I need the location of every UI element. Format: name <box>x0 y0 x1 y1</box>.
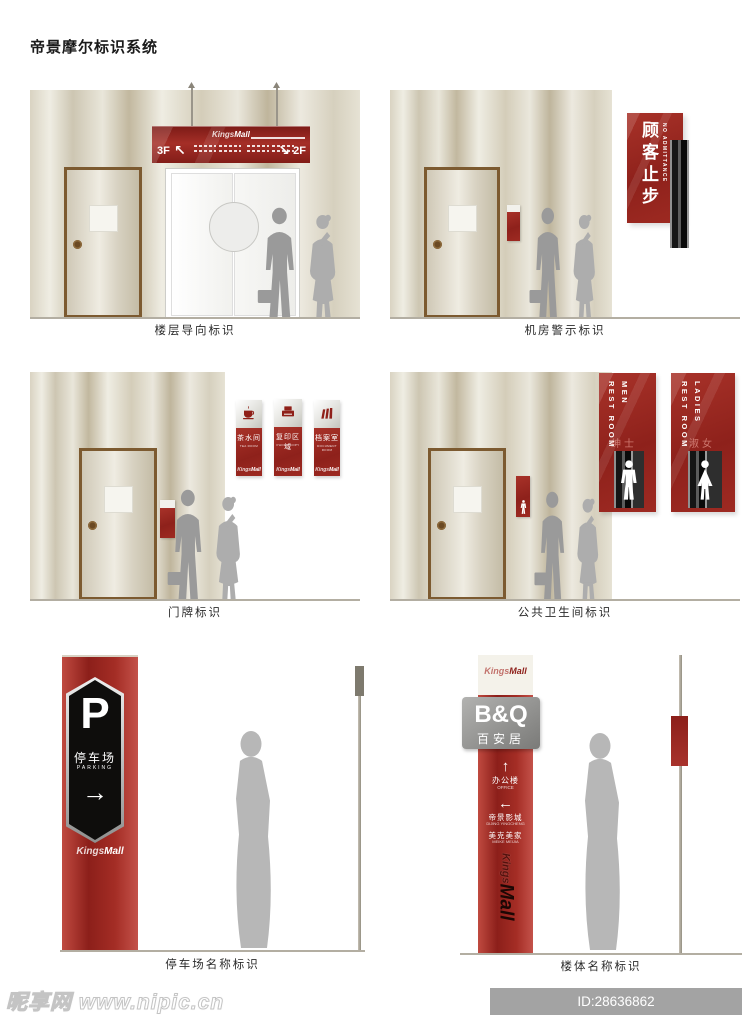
parking-symbol: P <box>66 689 124 739</box>
floor-line <box>30 317 360 319</box>
people-silhouettes <box>528 206 604 318</box>
door <box>428 448 506 600</box>
cup-icon <box>241 405 257 421</box>
plate-body: 档案室 DOCUMENT ROOM KingsMall <box>314 428 340 476</box>
plate-label-cn: 复印区域 <box>274 432 302 452</box>
people-silhouettes <box>256 206 346 318</box>
door-knob <box>88 521 97 530</box>
arrow-up-left-icon: ↖ <box>174 143 186 157</box>
people-silhouettes <box>166 488 250 600</box>
ceiling-anchor <box>273 82 280 88</box>
direction-en: OFFICE <box>478 785 533 790</box>
brand-kings: Kings <box>315 467 329 473</box>
plate-label-en: TEA ROOM <box>236 444 262 448</box>
brand-mall: Mall <box>496 884 517 921</box>
elevator-circle-sign <box>209 202 259 252</box>
door-side-restroom-sign <box>516 476 530 517</box>
plate-label-en: PHOTO COPY <box>274 443 302 447</box>
door-plate-tea-room: 茶水间 TEA ROOM KingsMall <box>236 400 262 476</box>
caption-building: 楼体名称标识 <box>460 958 742 974</box>
caption-floor-sign: 楼层导向标识 <box>30 322 360 338</box>
floor-label-right: 2F <box>293 145 306 157</box>
watermark-site: 昵享网 www.nipic.cn <box>6 986 224 1016</box>
restroom-sign-ladies: REST ROOM LADIES 淑女 <box>671 373 735 512</box>
brand-kings: Kings <box>484 666 509 676</box>
brand-kings: Kings <box>276 467 290 473</box>
plate-label-cn: 茶水间 <box>236 433 262 443</box>
female-figure-icon <box>695 458 715 502</box>
brand-kings: Kings <box>500 853 512 884</box>
floor-line <box>30 599 360 601</box>
arrow-down-right-icon: ↘ <box>278 143 290 157</box>
slim-pole <box>358 666 361 950</box>
kingsmall-logo: KingsMall <box>62 846 138 857</box>
door-plate-copy-area: 复印区域 PHOTO COPY KingsMall <box>274 399 302 476</box>
arrow-right-icon: → <box>66 777 124 808</box>
watermark-site-name: 昵享网 <box>6 991 72 1014</box>
slim-pole <box>679 655 682 953</box>
kingsmall-logo: KingsMall <box>478 666 533 676</box>
pole-banner <box>671 716 688 766</box>
kingsmall-logo: KingsMall <box>314 467 340 473</box>
ceiling-anchor <box>188 82 195 88</box>
sign-wire <box>276 88 278 126</box>
male-figure-icon <box>619 458 639 502</box>
direction-en: DIJING YINGCHENG <box>478 821 533 826</box>
page-title: 帝景摩尔标识系统 <box>30 36 158 57</box>
floor-label-left: 3F <box>157 145 170 157</box>
door <box>79 448 157 600</box>
plate-label-en: DOCUMENT ROOM <box>314 444 340 452</box>
door-knob <box>73 240 82 249</box>
store-list-lines <box>219 144 241 153</box>
plate-label-cn: 档案室 <box>314 433 340 443</box>
parking-cn: 停车场 <box>66 749 124 766</box>
sign-body <box>507 212 520 241</box>
kingsmall-logo: KingsMall <box>236 467 262 473</box>
door-plaque <box>448 205 477 232</box>
door <box>424 167 500 318</box>
restroom-men-cn: 绅士 <box>611 435 637 450</box>
pylon-directions: ↑ 办公楼 OFFICE ← 帝景影城 DIJING YINGCHENG 美克美… <box>478 758 533 850</box>
plate-top <box>274 399 302 427</box>
kingsmall-logo-vertical: KingsMall <box>478 853 533 951</box>
sign-rule <box>251 137 305 139</box>
kingsmall-logo: KingsMall <box>274 467 302 473</box>
brand-mall: Mall <box>509 666 527 676</box>
pylon-white-cap: KingsMall <box>478 655 533 695</box>
restroom-ladies-cn: 淑女 <box>689 435 715 450</box>
brand-mall: Mall <box>251 467 261 473</box>
watermark-url: www.nipic.cn <box>79 991 224 1014</box>
sign-accent-bars <box>670 140 689 248</box>
copier-icon <box>280 404 296 420</box>
arrow-up-icon: ↑ <box>478 758 533 775</box>
door-plaque <box>89 205 118 232</box>
caption-restroom: 公共卫生间标识 <box>390 604 740 620</box>
male-figure-icon <box>520 500 527 514</box>
floor-line <box>60 950 365 952</box>
bq-logo: B&Q <box>462 701 540 729</box>
restroom-sign-men: REST ROOM MEN 绅士 <box>599 373 656 512</box>
floor-line <box>390 317 740 319</box>
door-side-sign <box>507 205 520 241</box>
hanging-floor-sign: KingsMall 3F ↖ ↘ 2F <box>152 126 310 163</box>
design-board: 帝景摩尔标识系统 KingsMall 3F ↖ ↘ 2F 楼层导向标识 <box>0 0 754 1024</box>
door-plate-archive-room: 档案室 DOCUMENT ROOM KingsMall <box>314 400 340 476</box>
plate-top <box>236 400 262 428</box>
no-admittance-en: NO ADMITTANCE <box>661 123 667 219</box>
kingsmall-logo: KingsMall <box>212 130 250 139</box>
store-list-lines <box>194 144 216 153</box>
sign-wire <box>191 88 193 126</box>
people-silhouettes <box>533 490 607 600</box>
door-knob <box>433 240 442 249</box>
woman-silhouette <box>224 727 286 951</box>
parking-en: PARKING <box>66 765 124 771</box>
pole-cap <box>355 666 364 696</box>
door <box>64 167 142 318</box>
store-list-lines <box>247 144 269 153</box>
bq-tenant-sign: B&Q 百安居 <box>462 697 540 749</box>
arrow-left-icon: ← <box>478 795 533 812</box>
no-admittance-cn: 顾客止步 <box>636 121 661 219</box>
sign-top <box>507 205 520 212</box>
brand-mall: Mall <box>290 467 300 473</box>
files-icon <box>319 405 335 421</box>
brand-kings: Kings <box>212 130 234 139</box>
plate-top <box>314 400 340 428</box>
brand-mall: Mall <box>234 130 250 139</box>
plate-body: 复印区域 PHOTO COPY KingsMall <box>274 427 302 476</box>
plate-body: 茶水间 TEA ROOM KingsMall <box>236 428 262 476</box>
floor-line <box>460 953 742 955</box>
parking-hex-sign: P 停车场 PARKING → <box>66 677 124 843</box>
vertical-logo-text: KingsMall <box>495 853 517 921</box>
caption-parking: 停车场名称标识 <box>60 956 365 972</box>
brand-kings: Kings <box>76 846 104 857</box>
caption-door-plate: 门牌标识 <box>30 604 360 620</box>
brand-kings: Kings <box>237 467 251 473</box>
brand-mall: Mall <box>329 467 339 473</box>
bq-cn: 百安居 <box>462 730 540 747</box>
floor-line <box>390 599 740 601</box>
door-plaque <box>104 486 133 513</box>
brand-mall: Mall <box>104 846 123 857</box>
door-plaque <box>453 486 482 513</box>
door-knob <box>437 521 446 530</box>
direction-en: MEIKE MEIJIA <box>478 839 533 844</box>
woman-silhouette <box>573 729 635 953</box>
watermark-id-box: ID:28636862 NO:20260124083140171100 <box>490 988 742 1015</box>
caption-machine-room: 机房警示标识 <box>390 322 740 338</box>
